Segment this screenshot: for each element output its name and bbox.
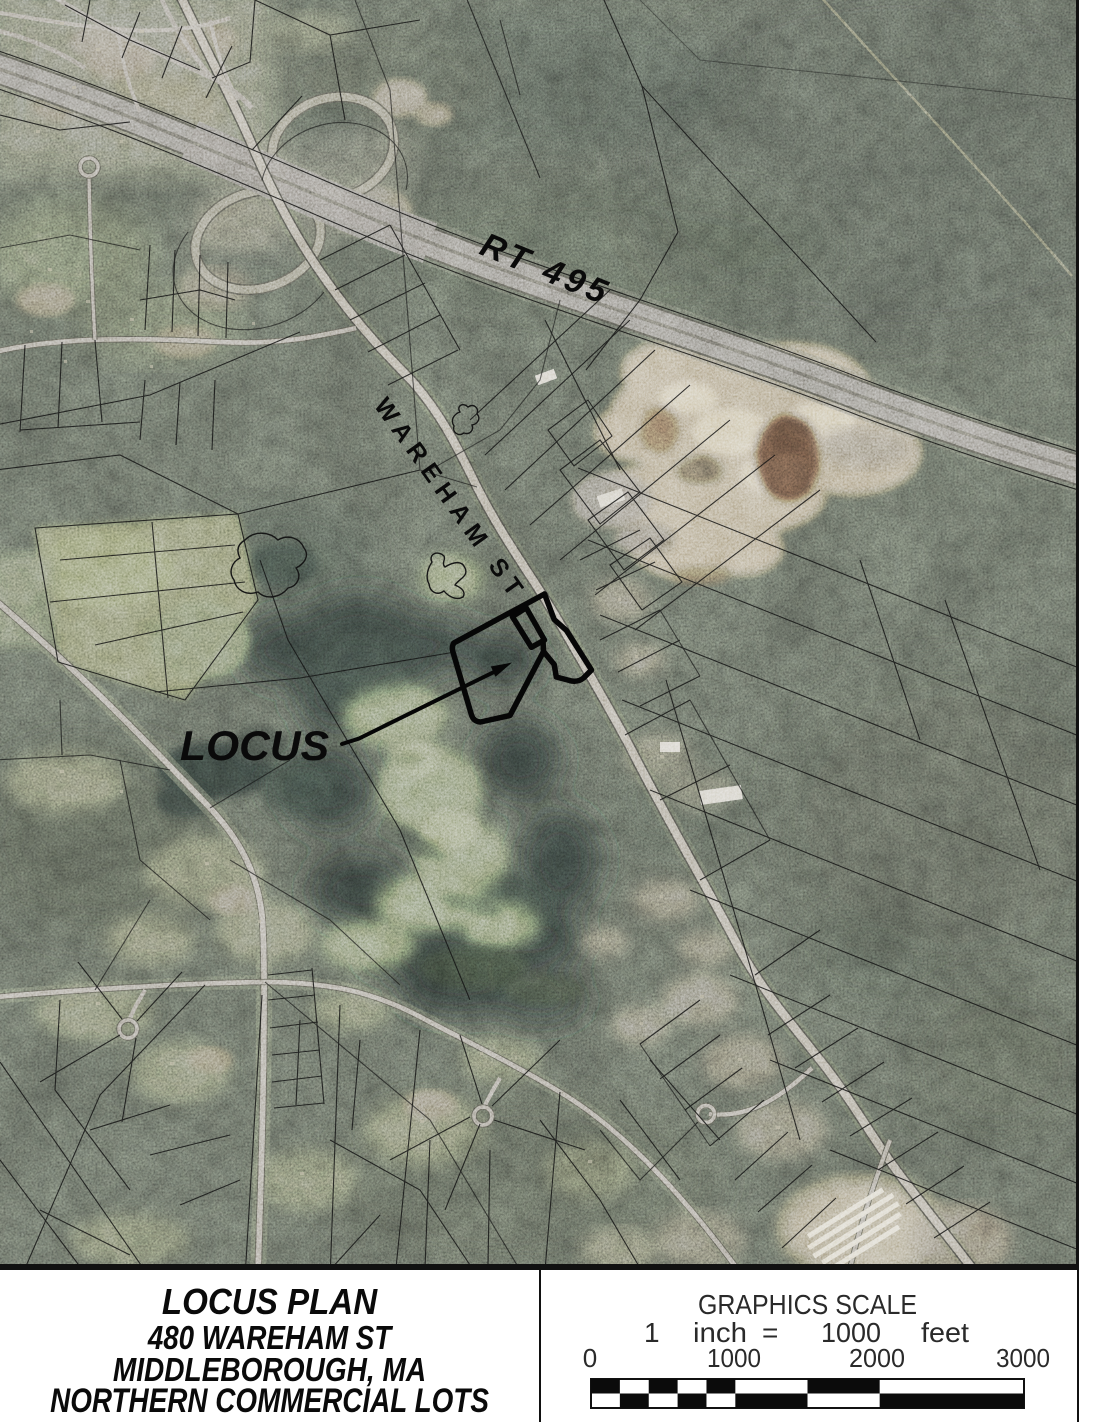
svg-text:LOCUS: LOCUS — [180, 722, 329, 769]
svg-text:feet: feet — [921, 1317, 969, 1348]
svg-text:3000: 3000 — [996, 1343, 1050, 1373]
svg-text:GRAPHICS SCALE: GRAPHICS SCALE — [698, 1289, 917, 1320]
svg-text:=: = — [762, 1317, 778, 1348]
svg-text:2000: 2000 — [849, 1343, 905, 1373]
svg-text:1000: 1000 — [707, 1343, 761, 1373]
svg-text:1: 1 — [644, 1317, 660, 1348]
svg-text:0: 0 — [583, 1343, 597, 1373]
